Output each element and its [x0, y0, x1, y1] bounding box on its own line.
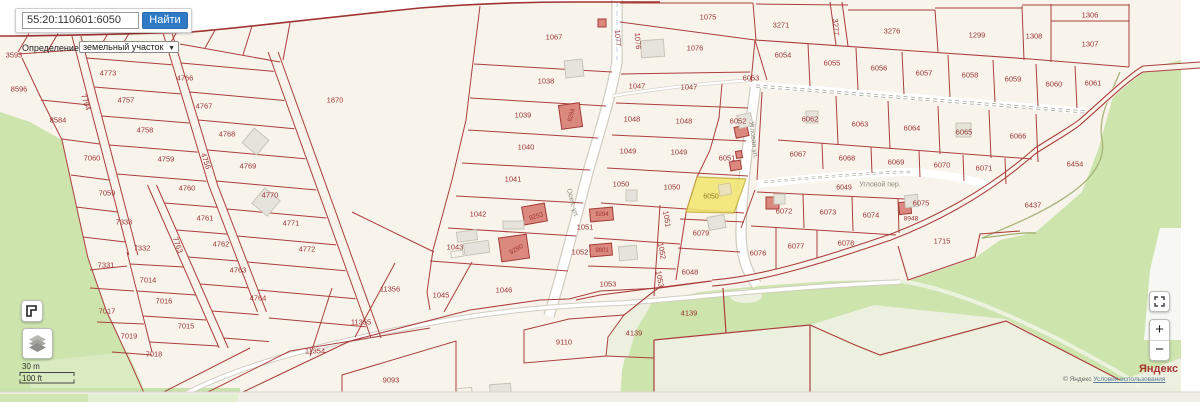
svg-text:6049: 6049 — [836, 184, 852, 191]
svg-text:6064: 6064 — [904, 124, 921, 133]
svg-text:1075: 1075 — [700, 13, 717, 22]
svg-text:6069: 6069 — [888, 158, 905, 167]
svg-text:7059: 7059 — [99, 189, 116, 198]
svg-text:1038: 1038 — [538, 77, 555, 86]
svg-text:7017: 7017 — [99, 307, 116, 316]
svg-text:6066: 6066 — [1010, 132, 1027, 141]
svg-text:1715: 1715 — [934, 237, 951, 246]
svg-text:6051: 6051 — [719, 154, 736, 163]
svg-text:1053: 1053 — [600, 280, 617, 289]
svg-text:8596: 8596 — [11, 85, 28, 94]
svg-text:1052: 1052 — [572, 248, 589, 257]
svg-text:4139: 4139 — [626, 329, 643, 338]
svg-text:1045: 1045 — [433, 291, 450, 300]
svg-text:4773: 4773 — [100, 69, 117, 78]
svg-text:1046: 1046 — [496, 286, 513, 295]
svg-text:6075: 6075 — [913, 199, 930, 208]
svg-text:9294: 9294 — [595, 212, 609, 218]
svg-text:11356: 11356 — [380, 285, 400, 294]
svg-text:6070: 6070 — [934, 161, 951, 170]
svg-text:Угловой пер.: Угловой пер. — [859, 180, 901, 188]
svg-text:3593: 3593 — [6, 51, 23, 60]
svg-text:1067: 1067 — [546, 33, 563, 42]
svg-text:1050: 1050 — [613, 180, 630, 189]
svg-text:7014: 7014 — [140, 276, 157, 285]
svg-text:6054: 6054 — [775, 51, 792, 60]
svg-text:6052: 6052 — [730, 117, 747, 126]
svg-text:6073: 6073 — [820, 208, 837, 217]
svg-text:6061: 6061 — [1085, 79, 1102, 88]
svg-text:8948: 8948 — [904, 215, 919, 222]
svg-text:6072: 6072 — [776, 207, 793, 216]
svg-text:6050: 6050 — [703, 193, 719, 200]
svg-text:4759: 4759 — [158, 155, 175, 164]
svg-text:3271: 3271 — [773, 21, 790, 30]
svg-text:1049: 1049 — [620, 147, 637, 156]
svg-text:6062: 6062 — [802, 115, 819, 124]
svg-text:4761: 4761 — [197, 214, 214, 223]
svg-text:7332: 7332 — [134, 244, 151, 253]
svg-text:1307: 1307 — [1082, 40, 1099, 49]
svg-text:6055: 6055 — [824, 59, 841, 68]
svg-text:6437: 6437 — [1025, 201, 1042, 210]
svg-text:1308: 1308 — [1026, 32, 1043, 41]
svg-text:6076: 6076 — [750, 249, 767, 258]
svg-text:6454: 6454 — [1067, 160, 1084, 169]
svg-text:7015: 7015 — [178, 322, 195, 331]
svg-text:7018: 7018 — [146, 350, 163, 359]
svg-text:6053: 6053 — [743, 74, 760, 83]
svg-text:6068: 6068 — [839, 154, 856, 163]
svg-text:4139: 4139 — [681, 309, 698, 318]
svg-text:6078: 6078 — [838, 239, 855, 248]
svg-text:6056: 6056 — [871, 64, 888, 73]
svg-text:9801: 9801 — [595, 248, 609, 254]
svg-text:3277: 3277 — [831, 18, 841, 35]
svg-text:8584: 8584 — [50, 116, 67, 125]
svg-text:11354: 11354 — [305, 347, 325, 356]
svg-text:4757: 4757 — [118, 96, 135, 105]
svg-text:4769: 4769 — [240, 162, 257, 171]
svg-text:1076: 1076 — [633, 32, 643, 49]
svg-text:4770: 4770 — [262, 191, 279, 200]
svg-text:1870: 1870 — [327, 96, 344, 105]
svg-text:1043: 1043 — [447, 243, 464, 252]
svg-text:1077: 1077 — [613, 29, 623, 46]
svg-text:1040: 1040 — [518, 143, 535, 152]
svg-text:1299: 1299 — [969, 31, 986, 40]
svg-text:4764: 4764 — [250, 294, 267, 303]
svg-text:1039: 1039 — [515, 111, 532, 120]
svg-text:7060: 7060 — [84, 154, 101, 163]
svg-text:3276: 3276 — [884, 27, 901, 36]
svg-text:7331: 7331 — [98, 261, 115, 270]
svg-text:6065: 6065 — [956, 128, 973, 137]
svg-text:1048: 1048 — [624, 115, 641, 124]
svg-text:4767: 4767 — [196, 102, 213, 111]
svg-text:6048: 6048 — [682, 268, 699, 277]
svg-text:6074: 6074 — [863, 211, 880, 220]
svg-text:1048: 1048 — [676, 117, 693, 126]
svg-text:6057: 6057 — [916, 69, 933, 78]
svg-text:11355: 11355 — [351, 318, 371, 327]
svg-text:6060: 6060 — [1046, 80, 1063, 89]
svg-text:6067: 6067 — [790, 150, 807, 159]
svg-text:7016: 7016 — [156, 297, 173, 306]
svg-text:4758: 4758 — [137, 126, 154, 135]
svg-text:6058: 6058 — [962, 71, 979, 80]
svg-text:1049: 1049 — [671, 148, 688, 157]
svg-text:1047: 1047 — [681, 83, 698, 92]
svg-text:1041: 1041 — [505, 175, 522, 184]
svg-text:9093: 9093 — [383, 376, 400, 385]
svg-text:1047: 1047 — [629, 82, 646, 91]
svg-text:6071: 6071 — [976, 164, 993, 173]
svg-text:4763: 4763 — [230, 266, 247, 275]
svg-text:6079: 6079 — [693, 229, 710, 238]
svg-text:6059: 6059 — [1005, 75, 1022, 84]
svg-text:4772: 4772 — [299, 245, 316, 254]
svg-text:7333: 7333 — [116, 218, 133, 227]
svg-text:1306: 1306 — [1082, 11, 1099, 20]
svg-text:1042: 1042 — [470, 210, 487, 219]
svg-text:7019: 7019 — [121, 332, 138, 341]
svg-text:4760: 4760 — [179, 184, 196, 193]
svg-text:6063: 6063 — [852, 120, 869, 129]
svg-text:6077: 6077 — [788, 242, 805, 251]
svg-text:4771: 4771 — [283, 219, 300, 228]
svg-text:9110: 9110 — [556, 338, 572, 347]
svg-text:1050: 1050 — [664, 183, 681, 192]
svg-text:1076: 1076 — [687, 44, 704, 53]
svg-text:4762: 4762 — [213, 240, 230, 249]
svg-text:1051: 1051 — [577, 223, 594, 232]
svg-text:4766: 4766 — [177, 74, 194, 83]
svg-text:4768: 4768 — [219, 130, 236, 139]
